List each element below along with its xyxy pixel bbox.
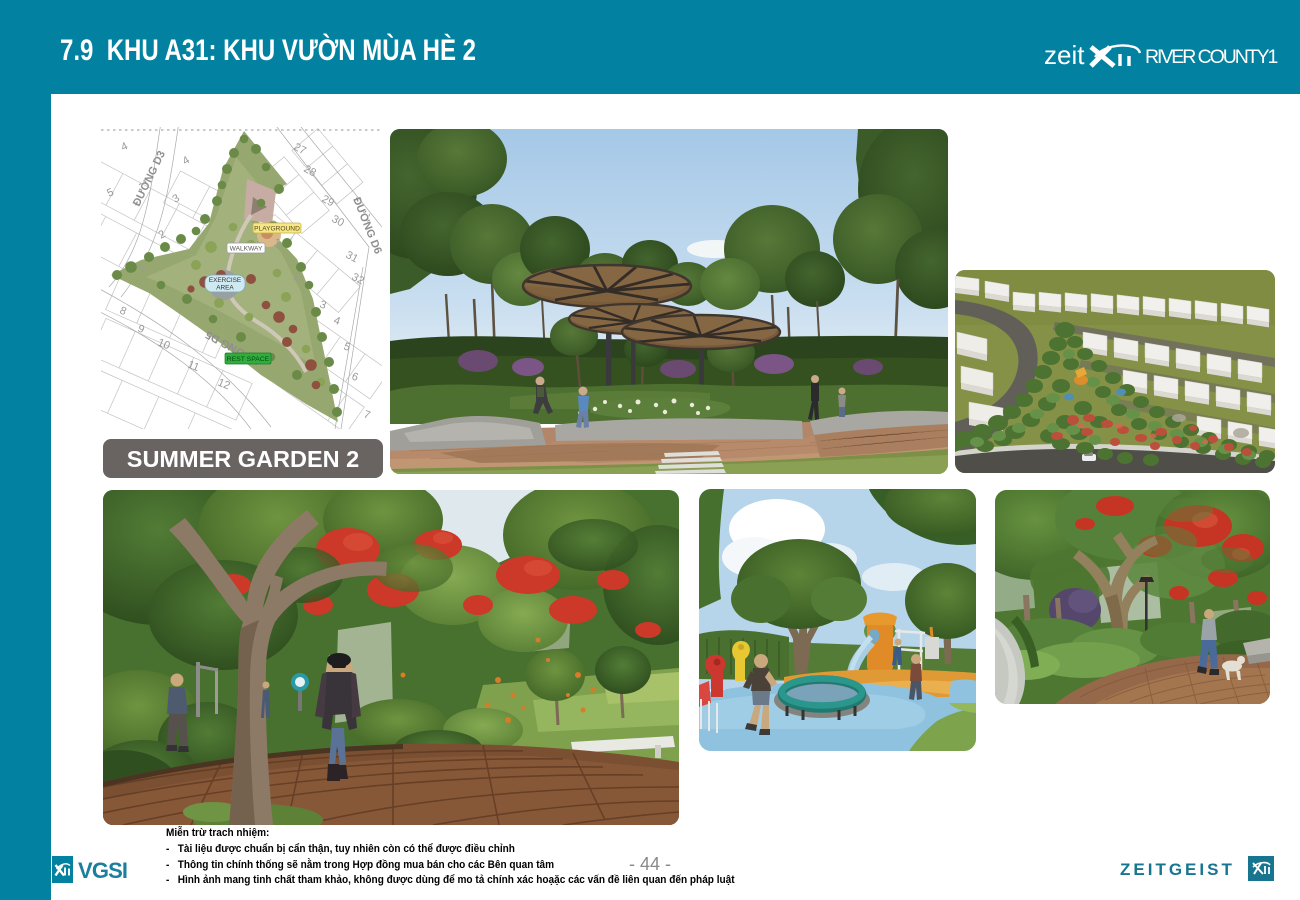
svg-text:AREA: AREA (216, 285, 234, 292)
svg-text:RIVER COUNTY1: RIVER COUNTY1 (1145, 46, 1279, 68)
svg-text:WALKWAY: WALKWAY (230, 246, 263, 253)
svg-text:PLAYGROUND: PLAYGROUND (254, 226, 300, 233)
svg-text:EXERCISE: EXERCISE (209, 277, 241, 284)
svg-text:VGSI: VGSI (78, 858, 128, 883)
svg-text:ZEITGEIST: ZEITGEIST (1120, 860, 1235, 879)
svg-text:zeit: zeit (1044, 40, 1085, 70)
svg-text:REST SPACE: REST SPACE (227, 356, 270, 363)
